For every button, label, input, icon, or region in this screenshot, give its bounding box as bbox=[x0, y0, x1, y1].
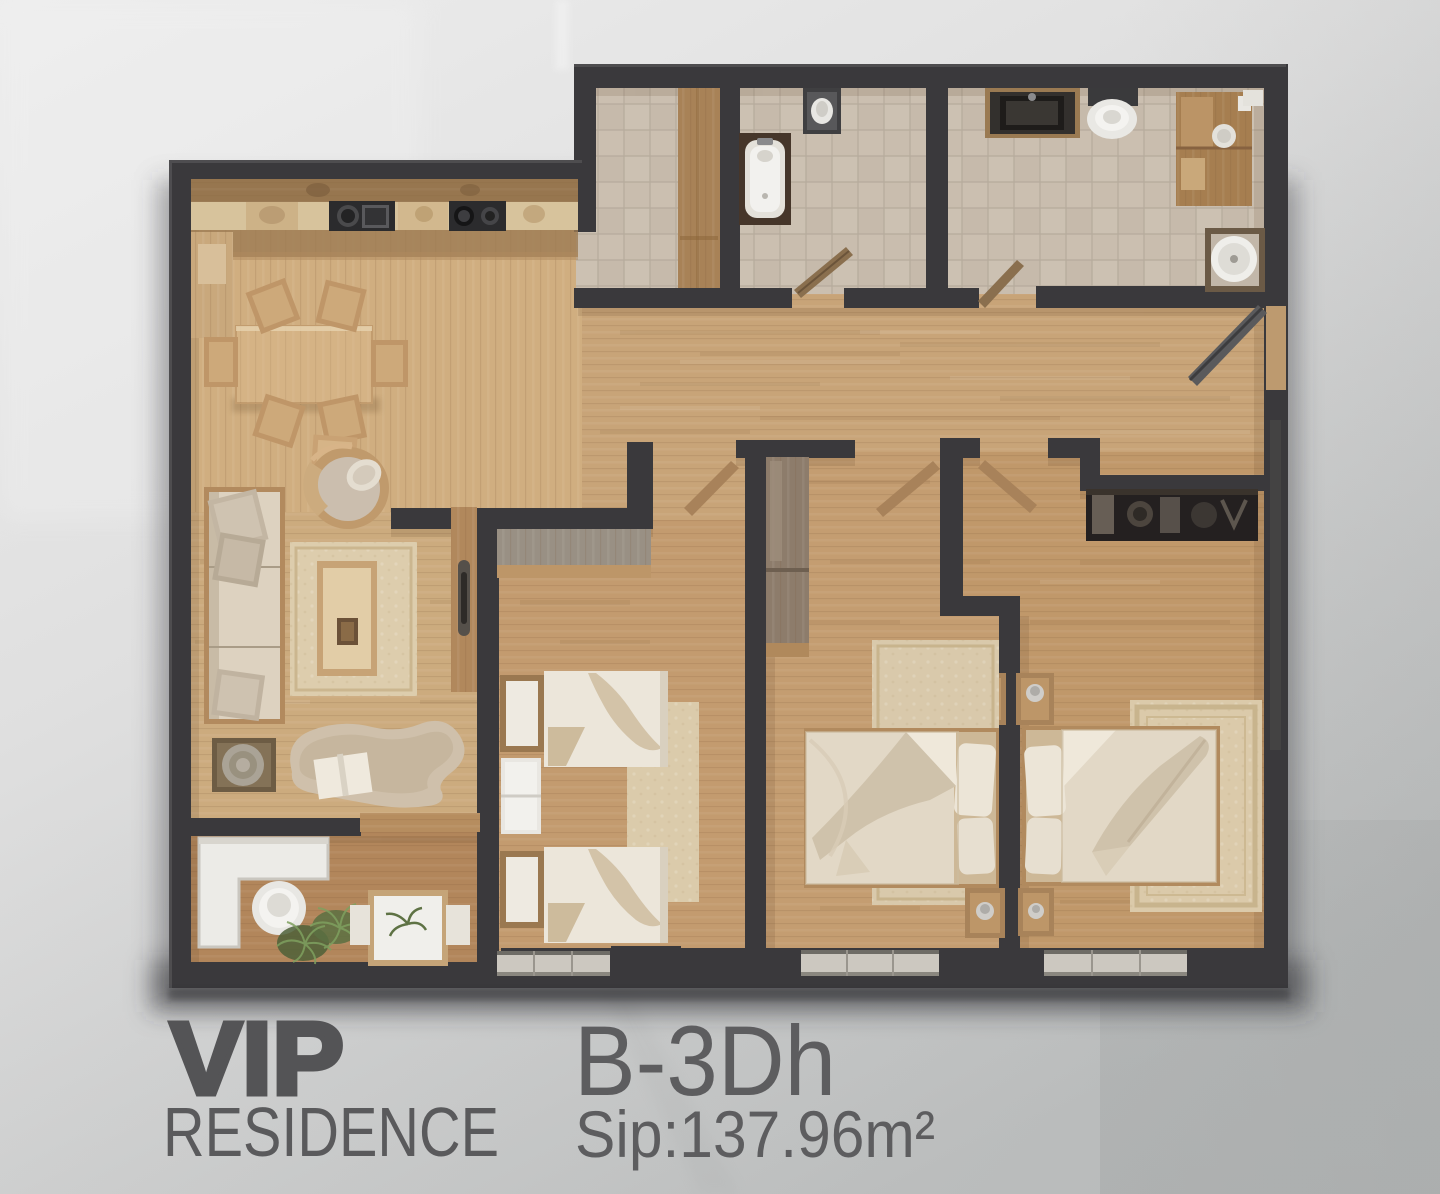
svg-text:Sip:137.96m²: Sip:137.96m² bbox=[575, 1097, 935, 1171]
svg-text:RESIDENCE: RESIDENCE bbox=[163, 1093, 499, 1171]
